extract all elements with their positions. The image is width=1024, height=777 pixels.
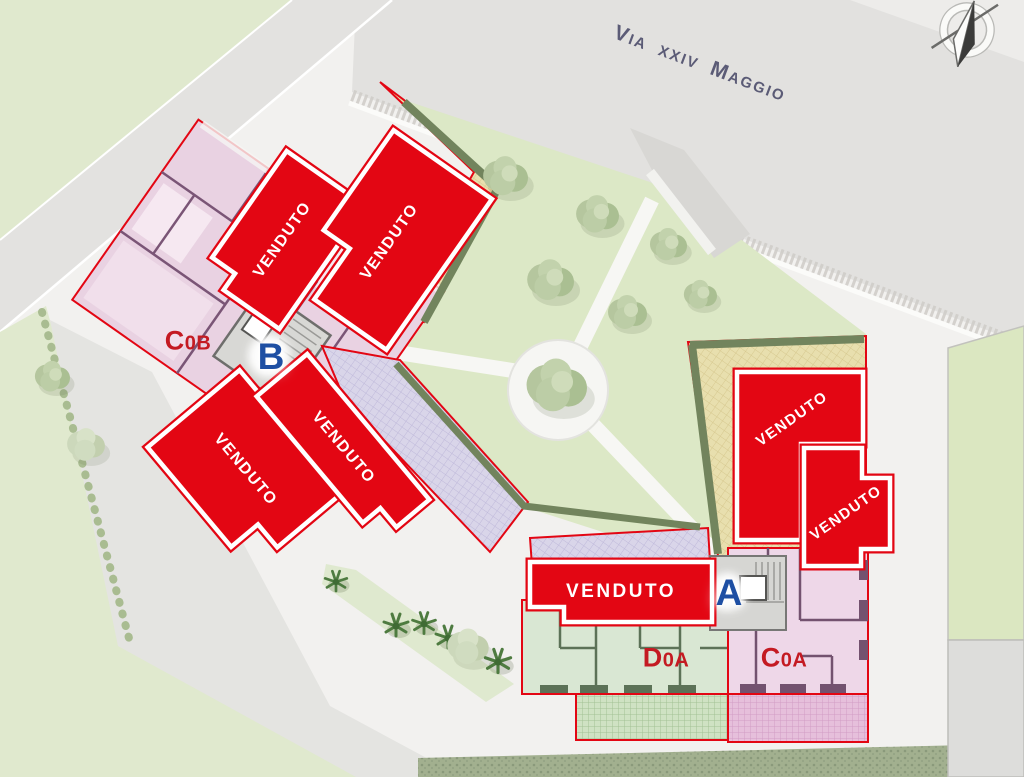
unit-label-c0b[interactable]: C0B bbox=[165, 326, 212, 357]
site-plan: Via xxiv Maggio VENDUTO VENDUTO VENDUTO … bbox=[0, 0, 1024, 777]
unit-rest: 0A bbox=[663, 650, 690, 672]
site-plan-svg bbox=[0, 0, 1024, 777]
unit-rest: 0A bbox=[781, 650, 808, 672]
stairwell-a-label: A bbox=[716, 572, 743, 614]
unit-initial: C bbox=[165, 326, 185, 356]
parking-bottom-right bbox=[948, 640, 1024, 777]
field-right bbox=[948, 326, 1024, 640]
unit-initial: C bbox=[761, 643, 781, 673]
unit-label-d0a[interactable]: D0A bbox=[643, 643, 690, 674]
unit-label-c0a[interactable]: C0A bbox=[761, 643, 808, 674]
unit-initial: D bbox=[643, 643, 663, 673]
unit-rest: 0B bbox=[185, 333, 212, 355]
terrace-c0a bbox=[728, 694, 868, 742]
terrace-d0a bbox=[576, 694, 730, 740]
stairwell-b-label: B bbox=[258, 336, 285, 378]
sold-label-south[interactable]: VENDUTO bbox=[566, 581, 676, 603]
